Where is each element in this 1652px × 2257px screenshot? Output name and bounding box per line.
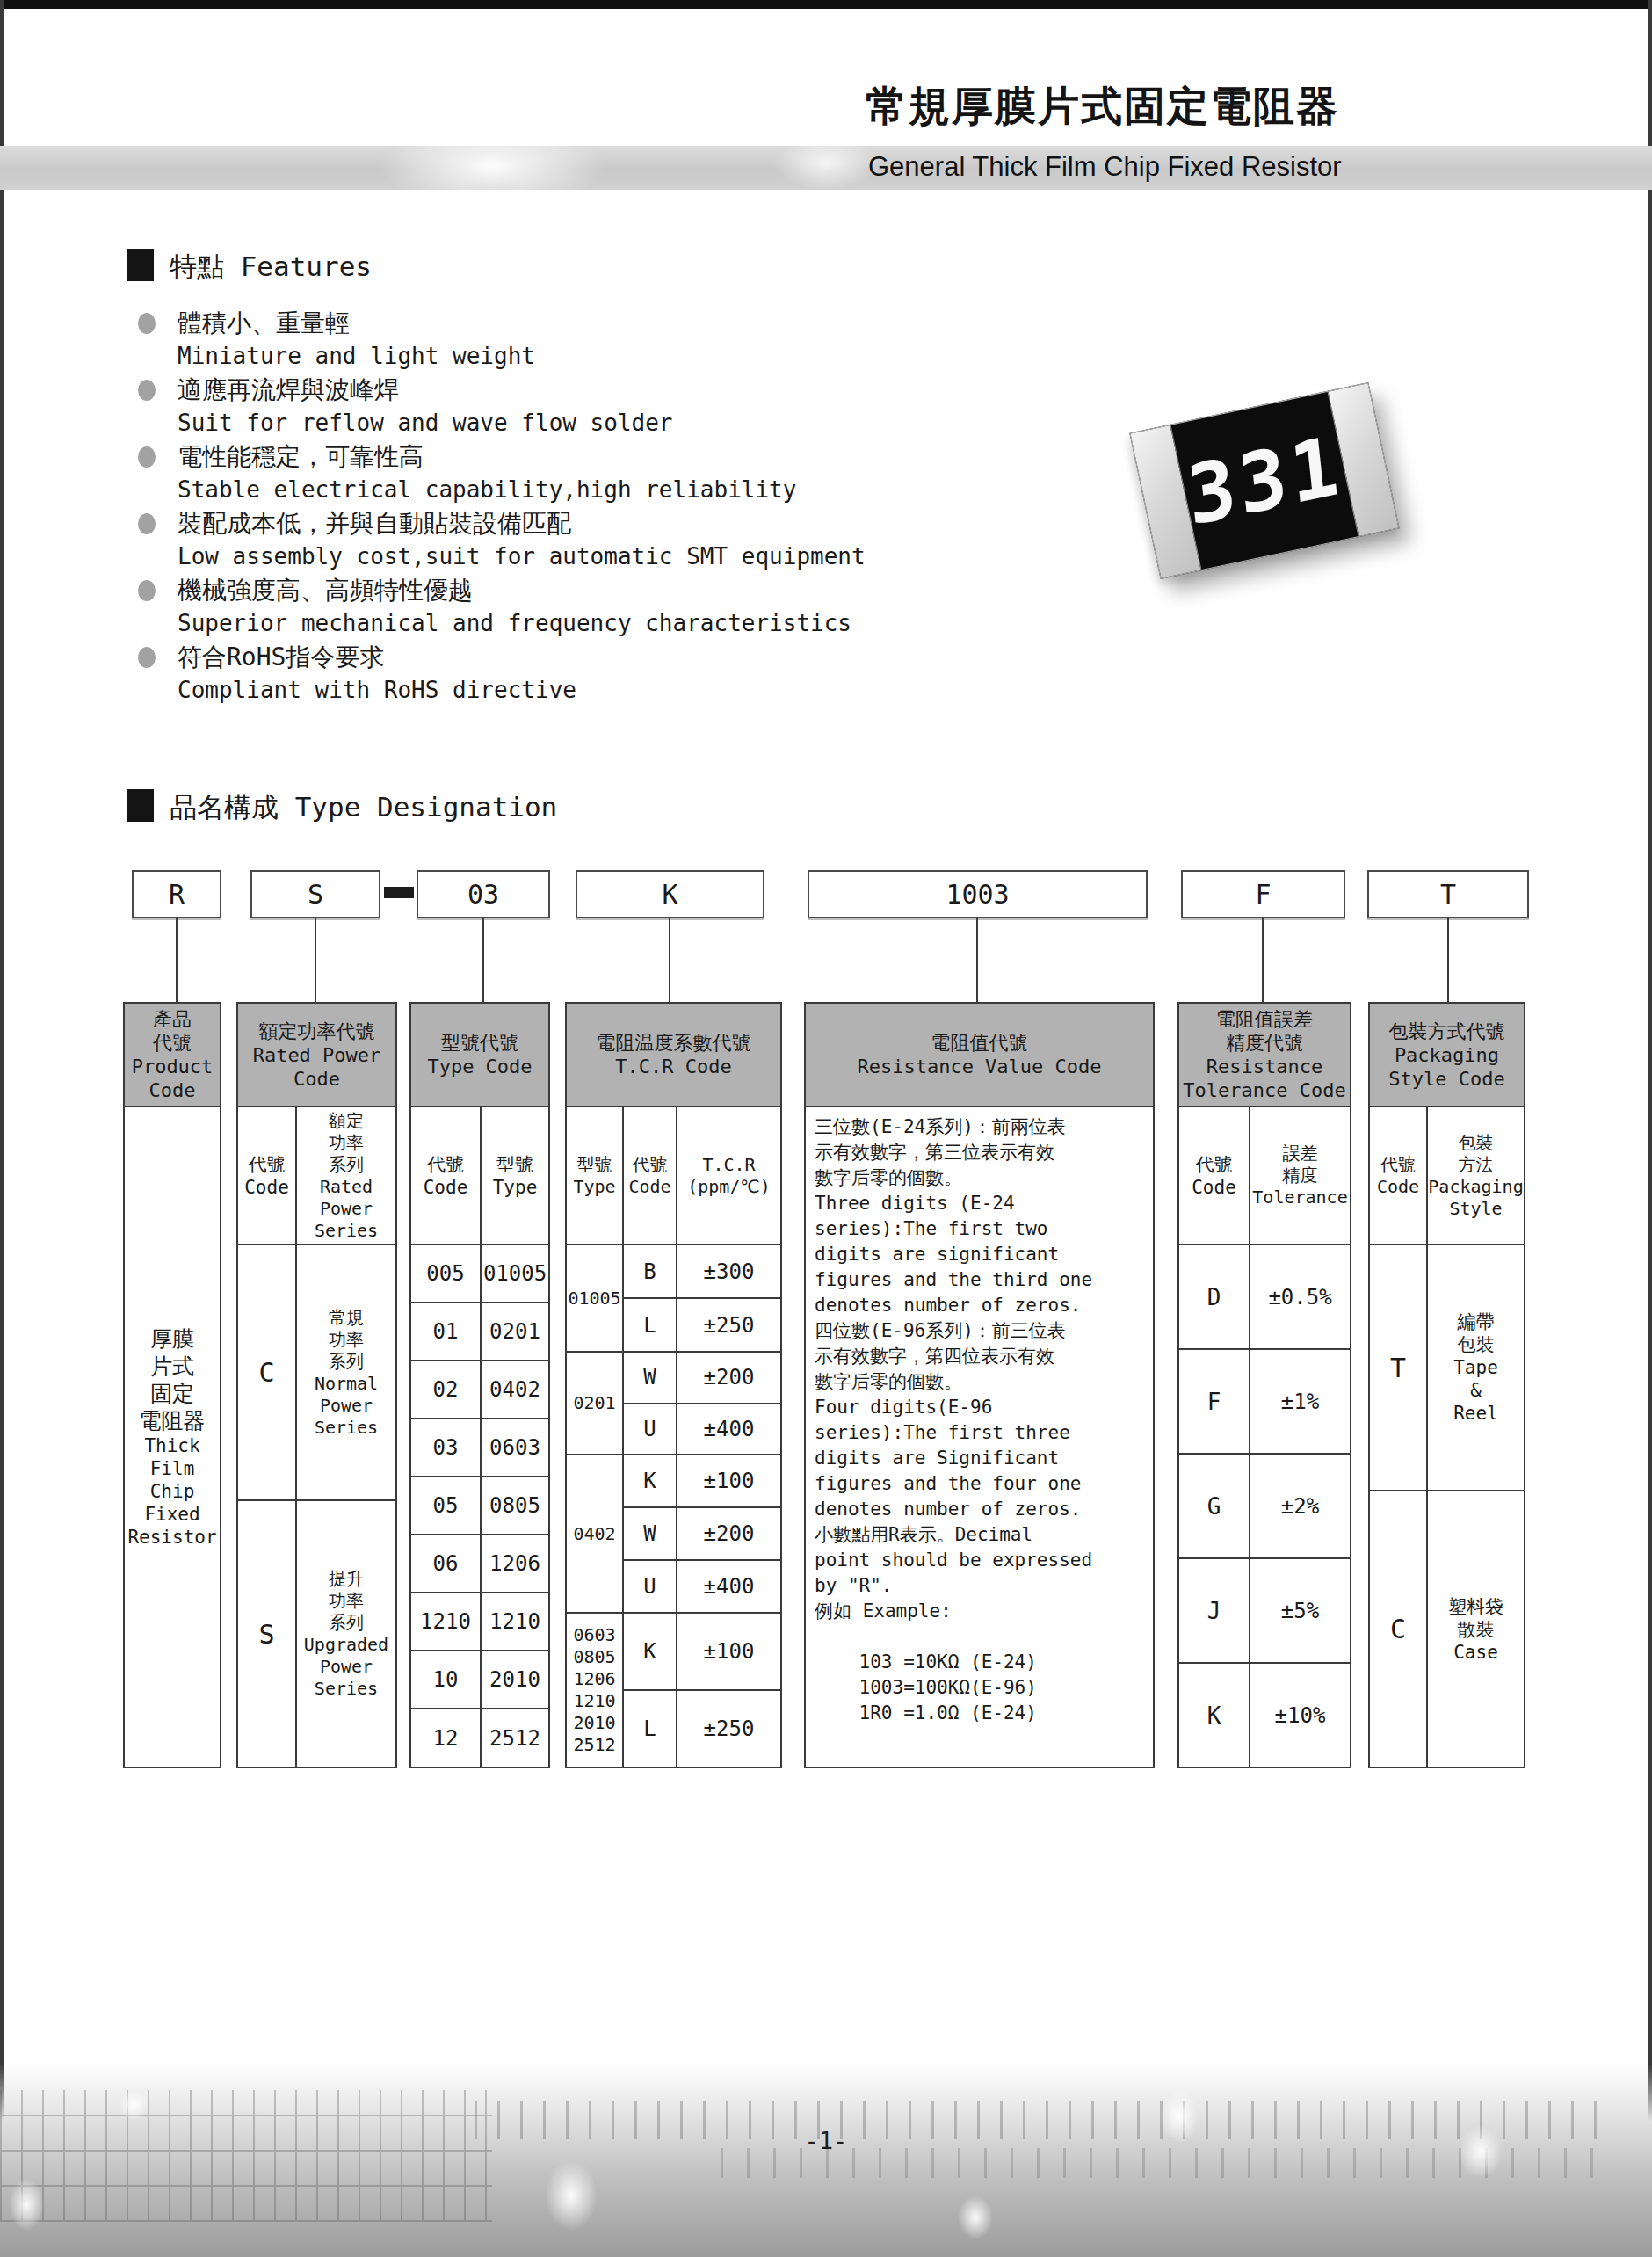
type-code: 005 xyxy=(411,1245,482,1302)
feature-zh: 適應再流焊與波峰焊 xyxy=(178,373,673,407)
tolerance-code: D xyxy=(1179,1245,1250,1348)
table-row: C 塑料袋 散裝 Case xyxy=(1370,1491,1524,1767)
feature-zh: 符合RoHS指令要求 xyxy=(178,640,576,674)
bullet-icon xyxy=(138,313,156,334)
tcr-code: W xyxy=(624,1508,677,1559)
code-box-type: 03 xyxy=(417,870,550,918)
type-size: 0603 xyxy=(482,1419,548,1476)
subheader-code: 代號 Code xyxy=(238,1107,297,1244)
code-box-packaging: T xyxy=(1367,870,1529,918)
tcr-code: U xyxy=(624,1561,677,1612)
connector-line xyxy=(976,918,978,1002)
tolerance-code: J xyxy=(1179,1559,1250,1662)
connector-line xyxy=(1262,918,1264,1002)
tolerance-value: ±1% xyxy=(1250,1350,1350,1453)
type-code: 06 xyxy=(411,1535,482,1592)
column-header: 電阻值代號 Resistance Value Code xyxy=(806,1004,1153,1107)
table-row: K ±10% xyxy=(1179,1664,1350,1767)
list-item: 符合RoHS指令要求 Compliant with RoHS directive xyxy=(138,640,1017,707)
product-name-en: Thick Film Chip Fixed Resistor xyxy=(127,1434,216,1549)
type-code-column: 型號代號 Type Code 代號 Code 型號 Type 005 01005… xyxy=(409,1002,550,1768)
tcr-code: W xyxy=(624,1353,677,1403)
table-row: C 常規 功率 系列 Normal Power Series xyxy=(238,1245,395,1501)
designation-heading-label: 品名構成 Type Designation xyxy=(170,789,557,824)
subheader-code: 代號 Code xyxy=(624,1107,677,1244)
column-header: 電阻值誤差 精度代號 Resistance Tolerance Code xyxy=(1179,1004,1350,1107)
header-label: 包裝方式代號 Packaging Style Code xyxy=(1388,1020,1504,1091)
packaging-style: 編帶 包裝 Tape & Reel xyxy=(1428,1245,1524,1490)
table-row: F ±1% xyxy=(1179,1350,1350,1455)
type-size: 01005 xyxy=(482,1245,548,1302)
dash-separator xyxy=(384,887,414,898)
table-row: 005 01005 xyxy=(411,1245,548,1303)
table-row: 02 0402 xyxy=(411,1361,548,1419)
sparkle-highlight xyxy=(9,2178,44,2231)
page-number: -1- xyxy=(0,2127,1652,2154)
tcr-type: 01005 xyxy=(567,1245,624,1351)
subheader-type: 型號 Type xyxy=(567,1107,624,1244)
list-item: 體積小、重量輕 Miniature and light weight xyxy=(138,306,1017,373)
bullet-icon xyxy=(138,513,156,534)
table-row: J ±5% xyxy=(1179,1559,1350,1664)
page-right-border xyxy=(1648,0,1652,2257)
list-item: 裝配成本低，并與自動貼裝設備匹配 Low assembly cost,suit … xyxy=(138,506,1017,573)
section-marker-icon xyxy=(127,249,154,281)
connector-line xyxy=(176,918,178,1002)
tcr-value: ±100 xyxy=(677,1614,780,1689)
bullet-icon xyxy=(138,580,156,601)
sparkle-highlight xyxy=(545,2160,598,2231)
column-header: 包裝方式代號 Packaging Style Code xyxy=(1370,1004,1524,1107)
rated-power-column: 額定功率代號 Rated Power Code 代號 Code 額定 功率 系列… xyxy=(236,1002,397,1768)
type-size: 2512 xyxy=(482,1709,548,1767)
chip-resistor-photo: 331 xyxy=(1129,382,1399,579)
type-code: 10 xyxy=(411,1651,482,1708)
header-label: 產品 代號 Product Code xyxy=(132,1007,214,1102)
tolerance-value: ±10% xyxy=(1250,1664,1350,1767)
code-box-product: R xyxy=(132,870,221,918)
list-item: 機械強度高、高頻特性優越 Superior mechanical and fre… xyxy=(138,573,1017,640)
table-row: S 提升 功率 系列 Upgraded Power Series xyxy=(238,1501,395,1767)
footer-pattern xyxy=(0,2090,492,2222)
type-size: 1210 xyxy=(482,1593,548,1650)
tcr-value: ±100 xyxy=(677,1455,780,1506)
header-label: 額定功率代號 Rated Power Code xyxy=(253,1020,381,1091)
designation-section-heading: 品名構成 Type Designation xyxy=(127,789,557,824)
column-header: 電阻温度系數代號 T.C.R Code xyxy=(567,1004,780,1107)
product-body-cell: 厚膜 片式 固定 電阻器 Thick Film Chip Fixed Resis… xyxy=(125,1107,220,1767)
packaging-column: 包裝方式代號 Packaging Style Code 代號 Code 包裝 方… xyxy=(1368,1002,1525,1768)
type-code: 12 xyxy=(411,1709,482,1767)
subheader-type: 型號 Type xyxy=(482,1107,548,1244)
column-header: 型號代號 Type Code xyxy=(411,1004,548,1107)
resistor-marking: 331 xyxy=(1177,390,1351,571)
page-title: 常規厚膜片式固定電阻器 xyxy=(866,79,1533,134)
tcr-code: B xyxy=(624,1245,677,1297)
feature-en: Superior mechanical and frequency charac… xyxy=(178,607,851,640)
resistance-value-description: 三位數(E-24系列)：前兩位表 示有效數字，第三位表示有效 數字后零的個數。 … xyxy=(806,1107,1153,1726)
code-box-tcr: K xyxy=(576,870,764,918)
table-row: 10 2010 xyxy=(411,1651,548,1709)
type-code: 05 xyxy=(411,1477,482,1534)
header-label: 電阻值誤差 精度代號 Resistance Tolerance Code xyxy=(1183,1007,1345,1102)
features-heading-label: 特點 Features xyxy=(170,249,372,284)
header-label: 電阻值代號 Resistance Value Code xyxy=(857,1031,1101,1078)
code-box-resistance: 1003 xyxy=(808,870,1148,918)
header-label: 電阻温度系數代號 T.C.R Code xyxy=(597,1031,751,1078)
connector-line xyxy=(315,918,316,1002)
subheader-tolerance: 誤差 精度 Tolerance xyxy=(1250,1107,1350,1244)
feature-en: Suit for reflow and wave flow solder xyxy=(178,407,673,439)
subheader-style: 包裝 方法 Packaging Style xyxy=(1428,1107,1524,1244)
feature-zh: 電性能穩定，可靠性高 xyxy=(178,439,796,474)
tolerance-code: G xyxy=(1179,1455,1250,1557)
table-row: T 編帶 包裝 Tape & Reel xyxy=(1370,1245,1524,1491)
product-name-zh: 厚膜 片式 固定 電阻器 xyxy=(127,1325,216,1434)
code-box-tolerance: F xyxy=(1181,870,1345,918)
connector-line xyxy=(1447,918,1449,1002)
tcr-value: ±200 xyxy=(677,1508,780,1559)
tolerance-value: ±2% xyxy=(1250,1455,1350,1557)
tcr-code: K xyxy=(624,1455,677,1506)
type-size: 2010 xyxy=(482,1651,548,1708)
page-left-border xyxy=(0,0,4,2257)
sparkle-highlight xyxy=(773,137,879,190)
packaging-style: 塑料袋 散裝 Case xyxy=(1428,1491,1524,1767)
header-label: 型號代號 Type Code xyxy=(427,1031,532,1078)
section-marker-icon xyxy=(127,789,154,822)
table-row: 06 1206 xyxy=(411,1535,548,1593)
connector-line xyxy=(482,918,484,1002)
type-size: 1206 xyxy=(482,1535,548,1592)
tolerance-code: K xyxy=(1179,1664,1250,1767)
table-row: 01 0201 xyxy=(411,1303,548,1361)
tolerance-code: F xyxy=(1179,1350,1250,1453)
power-series: 提升 功率 系列 Upgraded Power Series xyxy=(297,1501,395,1767)
tcr-column: 電阻温度系數代號 T.C.R Code 型號 Type 代號 Code T.C.… xyxy=(565,1002,782,1768)
resistance-value-column: 電阻值代號 Resistance Value Code 三位數(E-24系列)：… xyxy=(804,1002,1155,1768)
tcr-code: K xyxy=(624,1614,677,1689)
subheader-code: 代號 Code xyxy=(411,1107,482,1244)
feature-en: Compliant with RoHS directive xyxy=(178,674,576,707)
tcr-value: ±400 xyxy=(677,1404,780,1455)
feature-zh: 體積小、重量輕 xyxy=(178,306,535,340)
tolerance-value: ±5% xyxy=(1250,1559,1350,1662)
tcr-code: L xyxy=(624,1691,677,1767)
sparkle-highlight xyxy=(119,2090,149,2120)
list-item: 電性能穩定，可靠性高 Stable electrical capability,… xyxy=(138,439,1017,506)
bullet-icon xyxy=(138,647,156,668)
power-code: C xyxy=(238,1245,297,1499)
tcr-type: 0603 0805 1206 1210 2010 2512 xyxy=(567,1614,624,1767)
tcr-value: ±400 xyxy=(677,1561,780,1612)
tolerance-column: 電阻值誤差 精度代號 Resistance Tolerance Code 代號 … xyxy=(1177,1002,1351,1768)
tolerance-value: ±0.5% xyxy=(1250,1245,1350,1348)
type-size: 0402 xyxy=(482,1361,548,1418)
power-code: S xyxy=(238,1501,297,1767)
bullet-icon xyxy=(138,446,156,468)
tcr-value: ±200 xyxy=(677,1353,780,1403)
type-size: 0805 xyxy=(482,1477,548,1534)
connector-line xyxy=(669,918,670,1002)
packaging-code: C xyxy=(1370,1491,1428,1767)
tcr-group: 0402 K±100 W±200 U±400 xyxy=(567,1455,780,1614)
page-subtitle: General Thick Film Chip Fixed Resistor xyxy=(868,151,1536,183)
datasheet-page: 常規厚膜片式固定電阻器 General Thick Film Chip Fixe… xyxy=(0,0,1652,2257)
tcr-value: ±300 xyxy=(677,1245,780,1297)
footer-band: -1- xyxy=(0,2064,1652,2257)
tcr-code: L xyxy=(624,1299,677,1351)
tcr-group: 0603 0805 1206 1210 2010 2512 K±100 L±25… xyxy=(567,1614,780,1767)
type-code: 1210 xyxy=(411,1593,482,1650)
packaging-code: T xyxy=(1370,1245,1428,1490)
features-list: 體積小、重量輕 Miniature and light weight 適應再流焊… xyxy=(138,306,1017,707)
column-header: 產品 代號 Product Code xyxy=(125,1004,220,1107)
table-row: D ±0.5% xyxy=(1179,1245,1350,1350)
feature-zh: 機械強度高、高頻特性優越 xyxy=(178,573,851,607)
tcr-value: ±250 xyxy=(677,1299,780,1351)
type-code: 03 xyxy=(411,1419,482,1476)
page-top-border xyxy=(0,0,1652,9)
feature-zh: 裝配成本低，并與自動貼裝設備匹配 xyxy=(178,506,866,541)
tcr-code: U xyxy=(624,1404,677,1455)
product-code-column: 產品 代號 Product Code 厚膜 片式 固定 電阻器 Thick Fi… xyxy=(123,1002,221,1768)
table-row: 12 2512 xyxy=(411,1709,548,1767)
tcr-value: ±250 xyxy=(677,1691,780,1767)
type-code: 01 xyxy=(411,1303,482,1360)
tcr-type: 0201 xyxy=(567,1353,624,1454)
subheader-code: 代號 Code xyxy=(1370,1107,1428,1244)
feature-en: Stable electrical capability,high reliab… xyxy=(178,474,796,506)
tcr-group: 0201 W±200 U±400 xyxy=(567,1353,780,1455)
table-row: 03 0603 xyxy=(411,1419,548,1477)
tcr-group: 01005 B±300 L±250 xyxy=(567,1245,780,1353)
bullet-icon xyxy=(138,380,156,401)
subheader-series: 額定 功率 系列 Rated Power Series xyxy=(297,1107,395,1244)
sparkle-highlight xyxy=(378,127,606,206)
feature-en: Miniature and light weight xyxy=(178,340,535,373)
type-size: 0201 xyxy=(482,1303,548,1360)
subheader-code: 代號 Code xyxy=(1179,1107,1250,1244)
tcr-type: 0402 xyxy=(567,1455,624,1612)
feature-en: Low assembly cost,suit for automatic SMT… xyxy=(178,541,866,573)
table-row: 1210 1210 xyxy=(411,1593,548,1651)
table-row: 05 0805 xyxy=(411,1477,548,1535)
sparkle-highlight xyxy=(958,2195,993,2239)
subheader-tcr: T.C.R (ppm/℃) xyxy=(677,1107,780,1244)
power-series: 常規 功率 系列 Normal Power Series xyxy=(297,1245,395,1499)
code-box-power: S xyxy=(250,870,380,918)
table-row: G ±2% xyxy=(1179,1455,1350,1559)
list-item: 適應再流焊與波峰焊 Suit for reflow and wave flow … xyxy=(138,373,1017,439)
column-header: 額定功率代號 Rated Power Code xyxy=(238,1004,395,1107)
features-section-heading: 特點 Features xyxy=(127,249,372,284)
type-code: 02 xyxy=(411,1361,482,1418)
